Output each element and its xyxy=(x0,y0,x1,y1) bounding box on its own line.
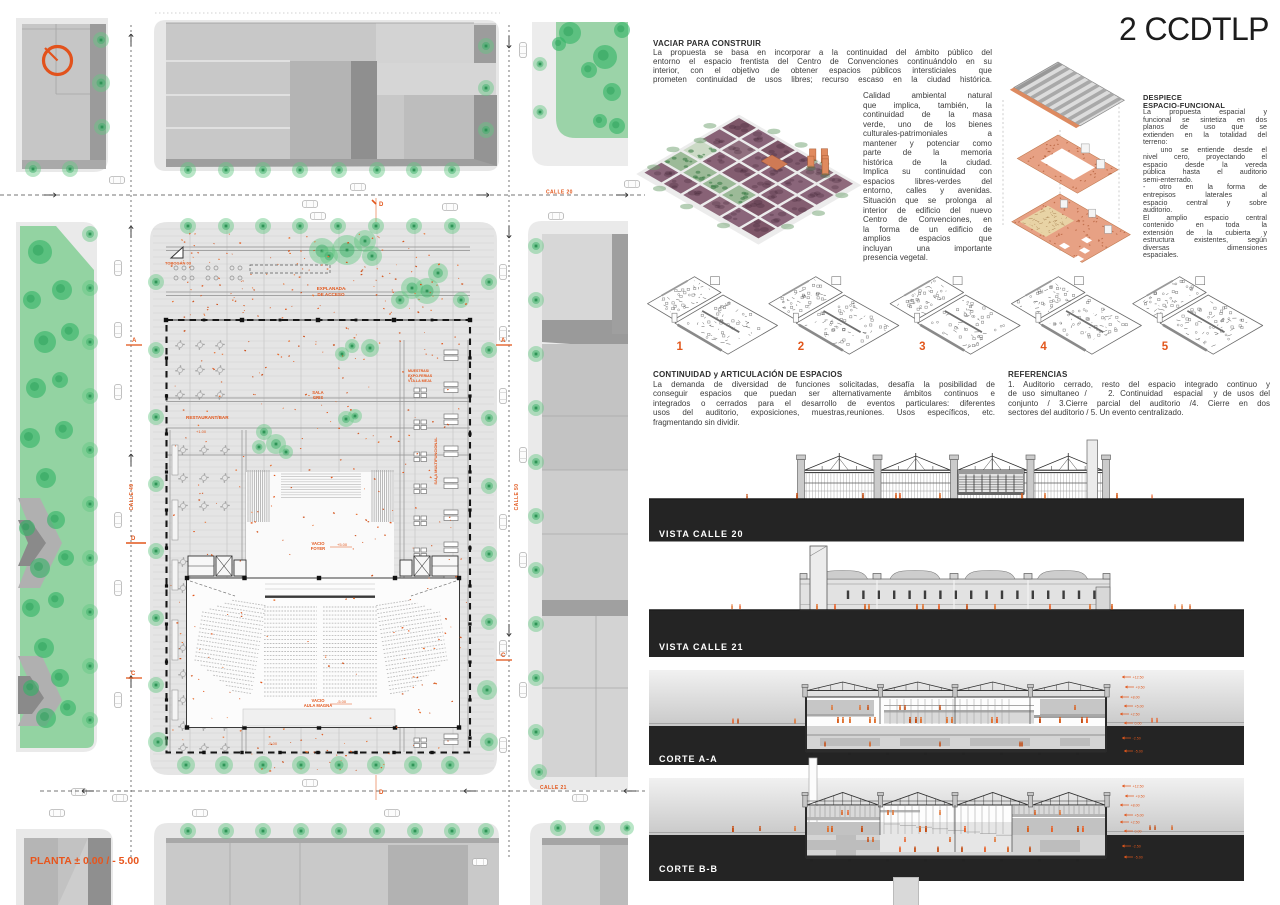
svg-text:CALLE 21: CALLE 21 xyxy=(540,785,567,791)
svg-text:-5.00: -5.00 xyxy=(337,699,347,704)
svg-text:+9.50: +9.50 xyxy=(1136,686,1145,690)
svg-text:0.00: 0.00 xyxy=(1135,830,1142,834)
svg-text:TOBOGÁN 03: TOBOGÁN 03 xyxy=(165,261,192,266)
svg-text:CALLE 49: CALLE 49 xyxy=(129,484,135,511)
svg-text:+2.50: +2.50 xyxy=(1131,713,1140,717)
svg-text:-5.00: -5.00 xyxy=(1135,856,1143,860)
svg-text:A: A xyxy=(132,338,137,344)
svg-text:VISTA CALLE 21: VISTA CALLE 21 xyxy=(659,642,744,652)
svg-text:+8.00: +8.00 xyxy=(1131,696,1140,700)
svg-text:+9.50: +9.50 xyxy=(1136,795,1145,799)
svg-text:FOYER: FOYER xyxy=(311,546,325,551)
svg-text:4: 4 xyxy=(1040,341,1047,353)
svg-text:AULA MAGNA: AULA MAGNA xyxy=(304,703,332,708)
svg-text:CORTE A-A: CORTE A-A xyxy=(659,754,718,764)
svg-text:DE ACCESO: DE ACCESO xyxy=(317,292,345,297)
svg-text:-5.00: -5.00 xyxy=(268,741,278,746)
svg-text:+1.00: +1.00 xyxy=(196,429,207,434)
svg-text:3: 3 xyxy=(919,341,925,353)
svg-text:MUESTRAS/: MUESTRAS/ xyxy=(408,369,429,373)
svg-text:A: A xyxy=(501,338,506,344)
svg-text:+2.50: +2.50 xyxy=(1131,821,1140,825)
svg-text:CALLE 20: CALLE 20 xyxy=(546,190,573,196)
svg-text:EXPO.FERIAS: EXPO.FERIAS xyxy=(408,374,433,378)
svg-text:VISTA CALLE 20: VISTA CALLE 20 xyxy=(659,529,744,539)
svg-text:-5.00: -5.00 xyxy=(1135,750,1143,754)
svg-text:C: C xyxy=(131,671,136,677)
svg-text:-2.50: -2.50 xyxy=(1133,737,1141,741)
svg-text:+8.00: +8.00 xyxy=(1131,804,1140,808)
svg-text:0.00: 0.00 xyxy=(1135,722,1142,726)
svg-text:PLANTA ± 0.00 / - 5.00: PLANTA ± 0.00 / - 5.00 xyxy=(30,855,139,867)
svg-text:2: 2 xyxy=(798,341,804,353)
svg-text:D: D xyxy=(379,202,384,208)
svg-text:-2.50: -2.50 xyxy=(1133,845,1141,849)
svg-text:1: 1 xyxy=(677,341,684,353)
svg-text:CALLE 50: CALLE 50 xyxy=(514,484,520,511)
svg-text:+12.50: +12.50 xyxy=(1133,785,1144,789)
svg-text:C: C xyxy=(501,653,506,659)
svg-text:VTA.LA MEJA: VTA.LA MEJA xyxy=(408,379,432,383)
svg-text:RESTAURANT/BAR: RESTAURANT/BAR xyxy=(186,415,229,420)
svg-text:D: D xyxy=(131,536,136,542)
svg-text:+5.00: +5.00 xyxy=(337,542,348,547)
svg-text:CORTE B-B: CORTE B-B xyxy=(659,864,718,874)
svg-text:+12.50: +12.50 xyxy=(1133,676,1144,680)
svg-text:D: D xyxy=(379,790,384,796)
svg-text:5: 5 xyxy=(1162,341,1169,353)
svg-text:+5.00: +5.00 xyxy=(1135,705,1144,709)
svg-text:GRIS: GRIS xyxy=(313,395,323,400)
svg-text:EXPLANADA: EXPLANADA xyxy=(317,286,346,291)
svg-text:+5.00: +5.00 xyxy=(1135,814,1144,818)
